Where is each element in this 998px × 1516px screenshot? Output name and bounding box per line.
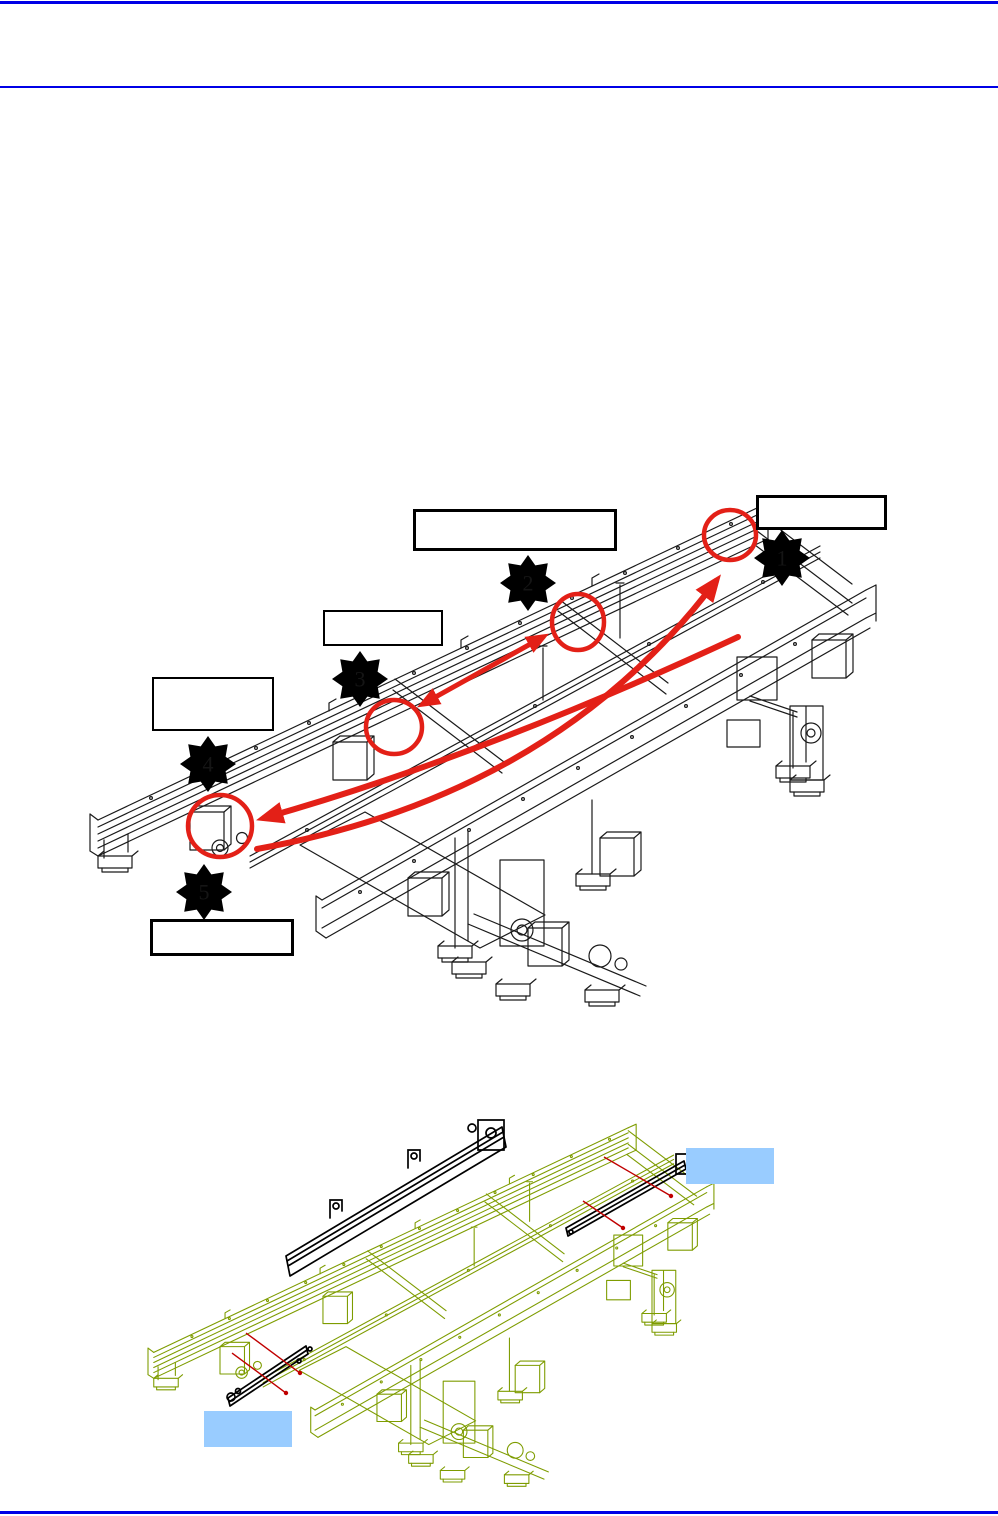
callout-number-5: 5 bbox=[199, 880, 210, 905]
rail-part-bottom-left bbox=[227, 1346, 312, 1406]
callout-burst-1: 1 bbox=[754, 530, 810, 586]
callout-burst-2: 2 bbox=[500, 555, 556, 611]
figure2-highlight-box-right bbox=[686, 1148, 774, 1184]
figure1-label-box-3 bbox=[323, 610, 443, 646]
inspection-circle-4-5 bbox=[188, 795, 252, 857]
callout-burst-5: 5 bbox=[176, 864, 232, 920]
callout-burst-3: 3 bbox=[332, 651, 388, 707]
figure1-label-box-4 bbox=[152, 677, 274, 731]
callout-number-4: 4 bbox=[203, 752, 214, 777]
diagrams-canvas: 1 2 3 4 5 bbox=[0, 0, 998, 1516]
figure1-label-box-5 bbox=[150, 919, 294, 956]
callout-number-3: 3 bbox=[355, 667, 366, 692]
callout-number-1: 1 bbox=[777, 546, 788, 571]
figure2-highlight-box-left bbox=[204, 1411, 292, 1447]
figure1-label-box-2 bbox=[413, 509, 617, 551]
double-arrow-between-2-and-3 bbox=[423, 637, 543, 704]
callout-number-2: 2 bbox=[523, 571, 534, 596]
route-arrow-to-point-5 bbox=[264, 637, 738, 818]
rail-part-middle-right bbox=[566, 1154, 692, 1236]
callout-burst-4: 4 bbox=[180, 736, 236, 792]
figure2-detached-parts bbox=[227, 1120, 692, 1406]
document-page: 1 2 3 4 5 bbox=[0, 0, 998, 1516]
figure1-label-box-1 bbox=[756, 495, 887, 530]
